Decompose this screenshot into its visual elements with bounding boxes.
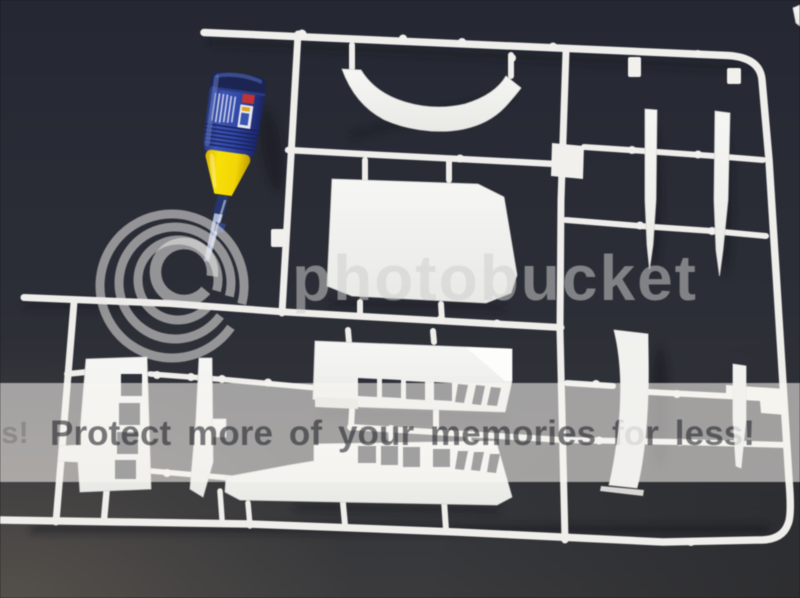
svg-text:Protect more of your memories: Protect more of your memories for less! <box>50 414 755 453</box>
svg-text:ss!: ss! <box>0 415 29 450</box>
svg-text:photobucket: photobucket <box>292 242 698 314</box>
